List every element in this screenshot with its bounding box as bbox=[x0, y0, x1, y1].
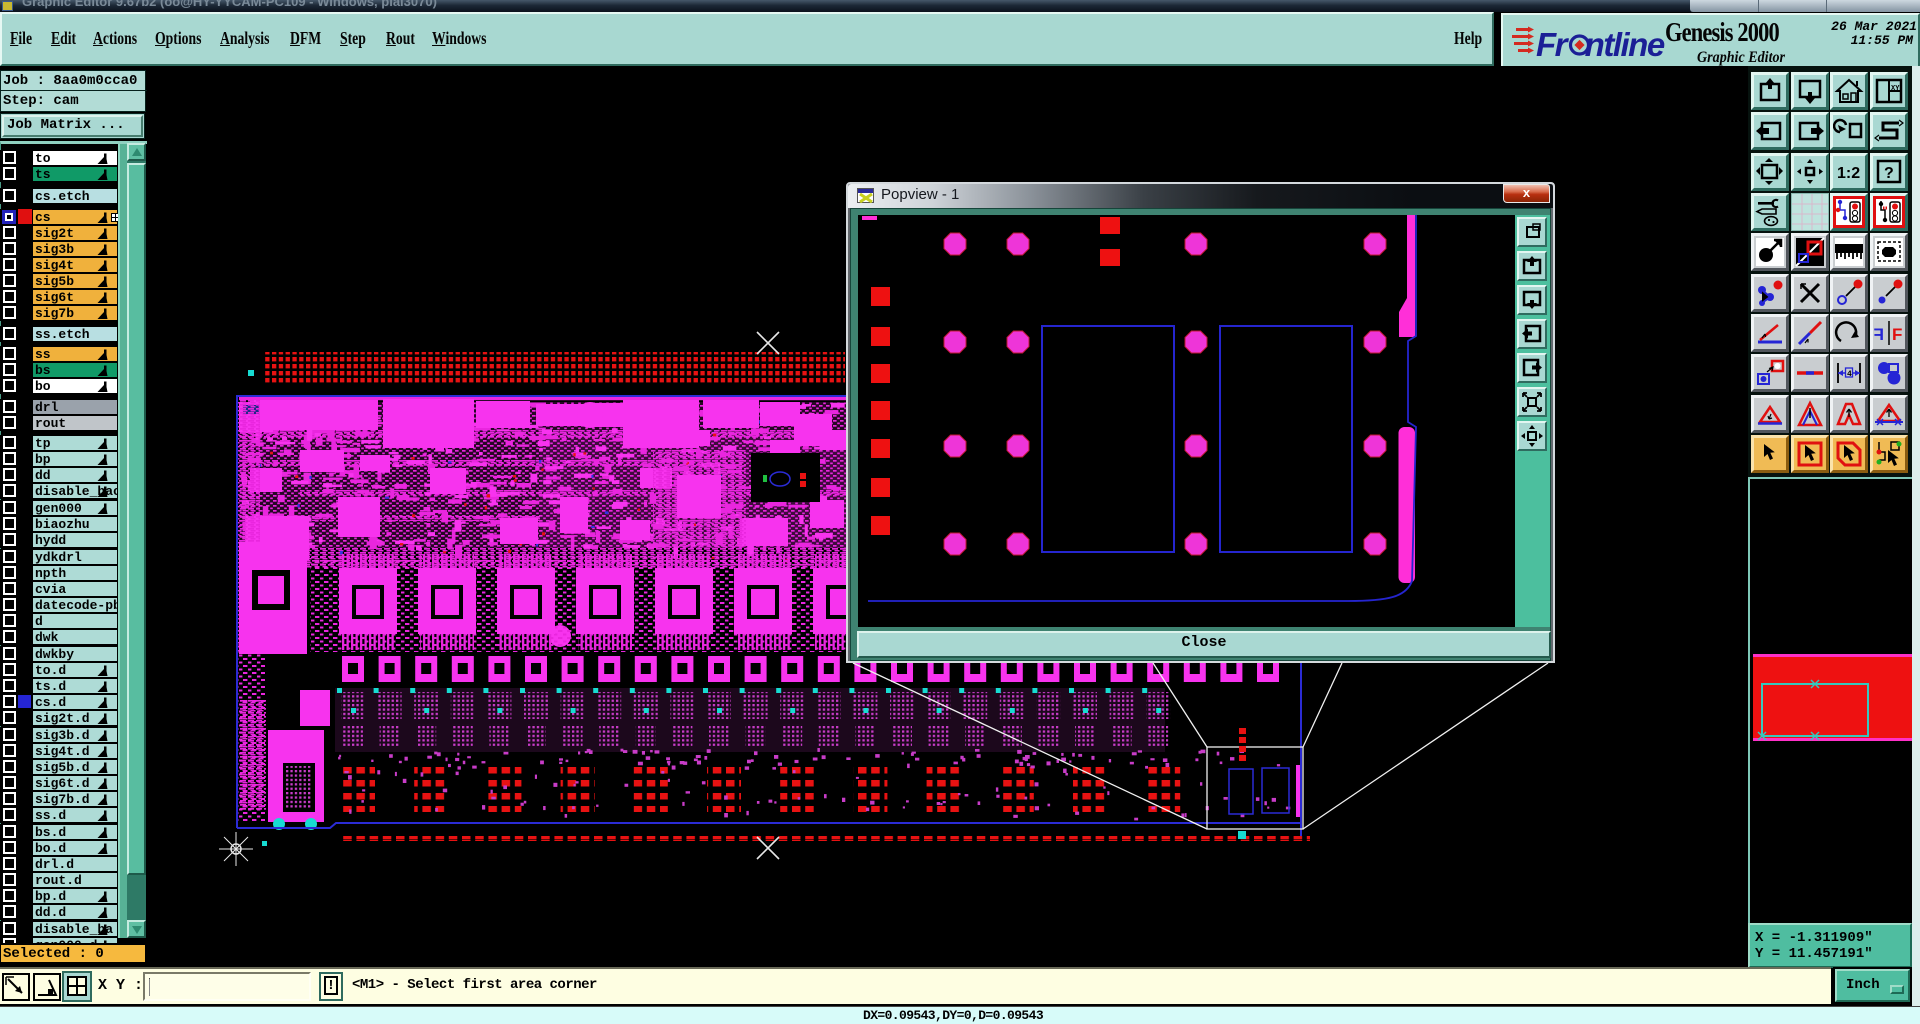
svg-text:F: F bbox=[1892, 325, 1902, 344]
svg-text:1:2: 1:2 bbox=[1837, 165, 1860, 182]
svg-text:4: 4 bbox=[1847, 370, 1852, 379]
svg-text:?: ? bbox=[1884, 165, 1894, 182]
svg-text:XY: XY bbox=[1891, 85, 1900, 93]
svg-text:F: F bbox=[1874, 325, 1884, 344]
svg-text:Frontline: Frontline bbox=[1536, 26, 1665, 63]
